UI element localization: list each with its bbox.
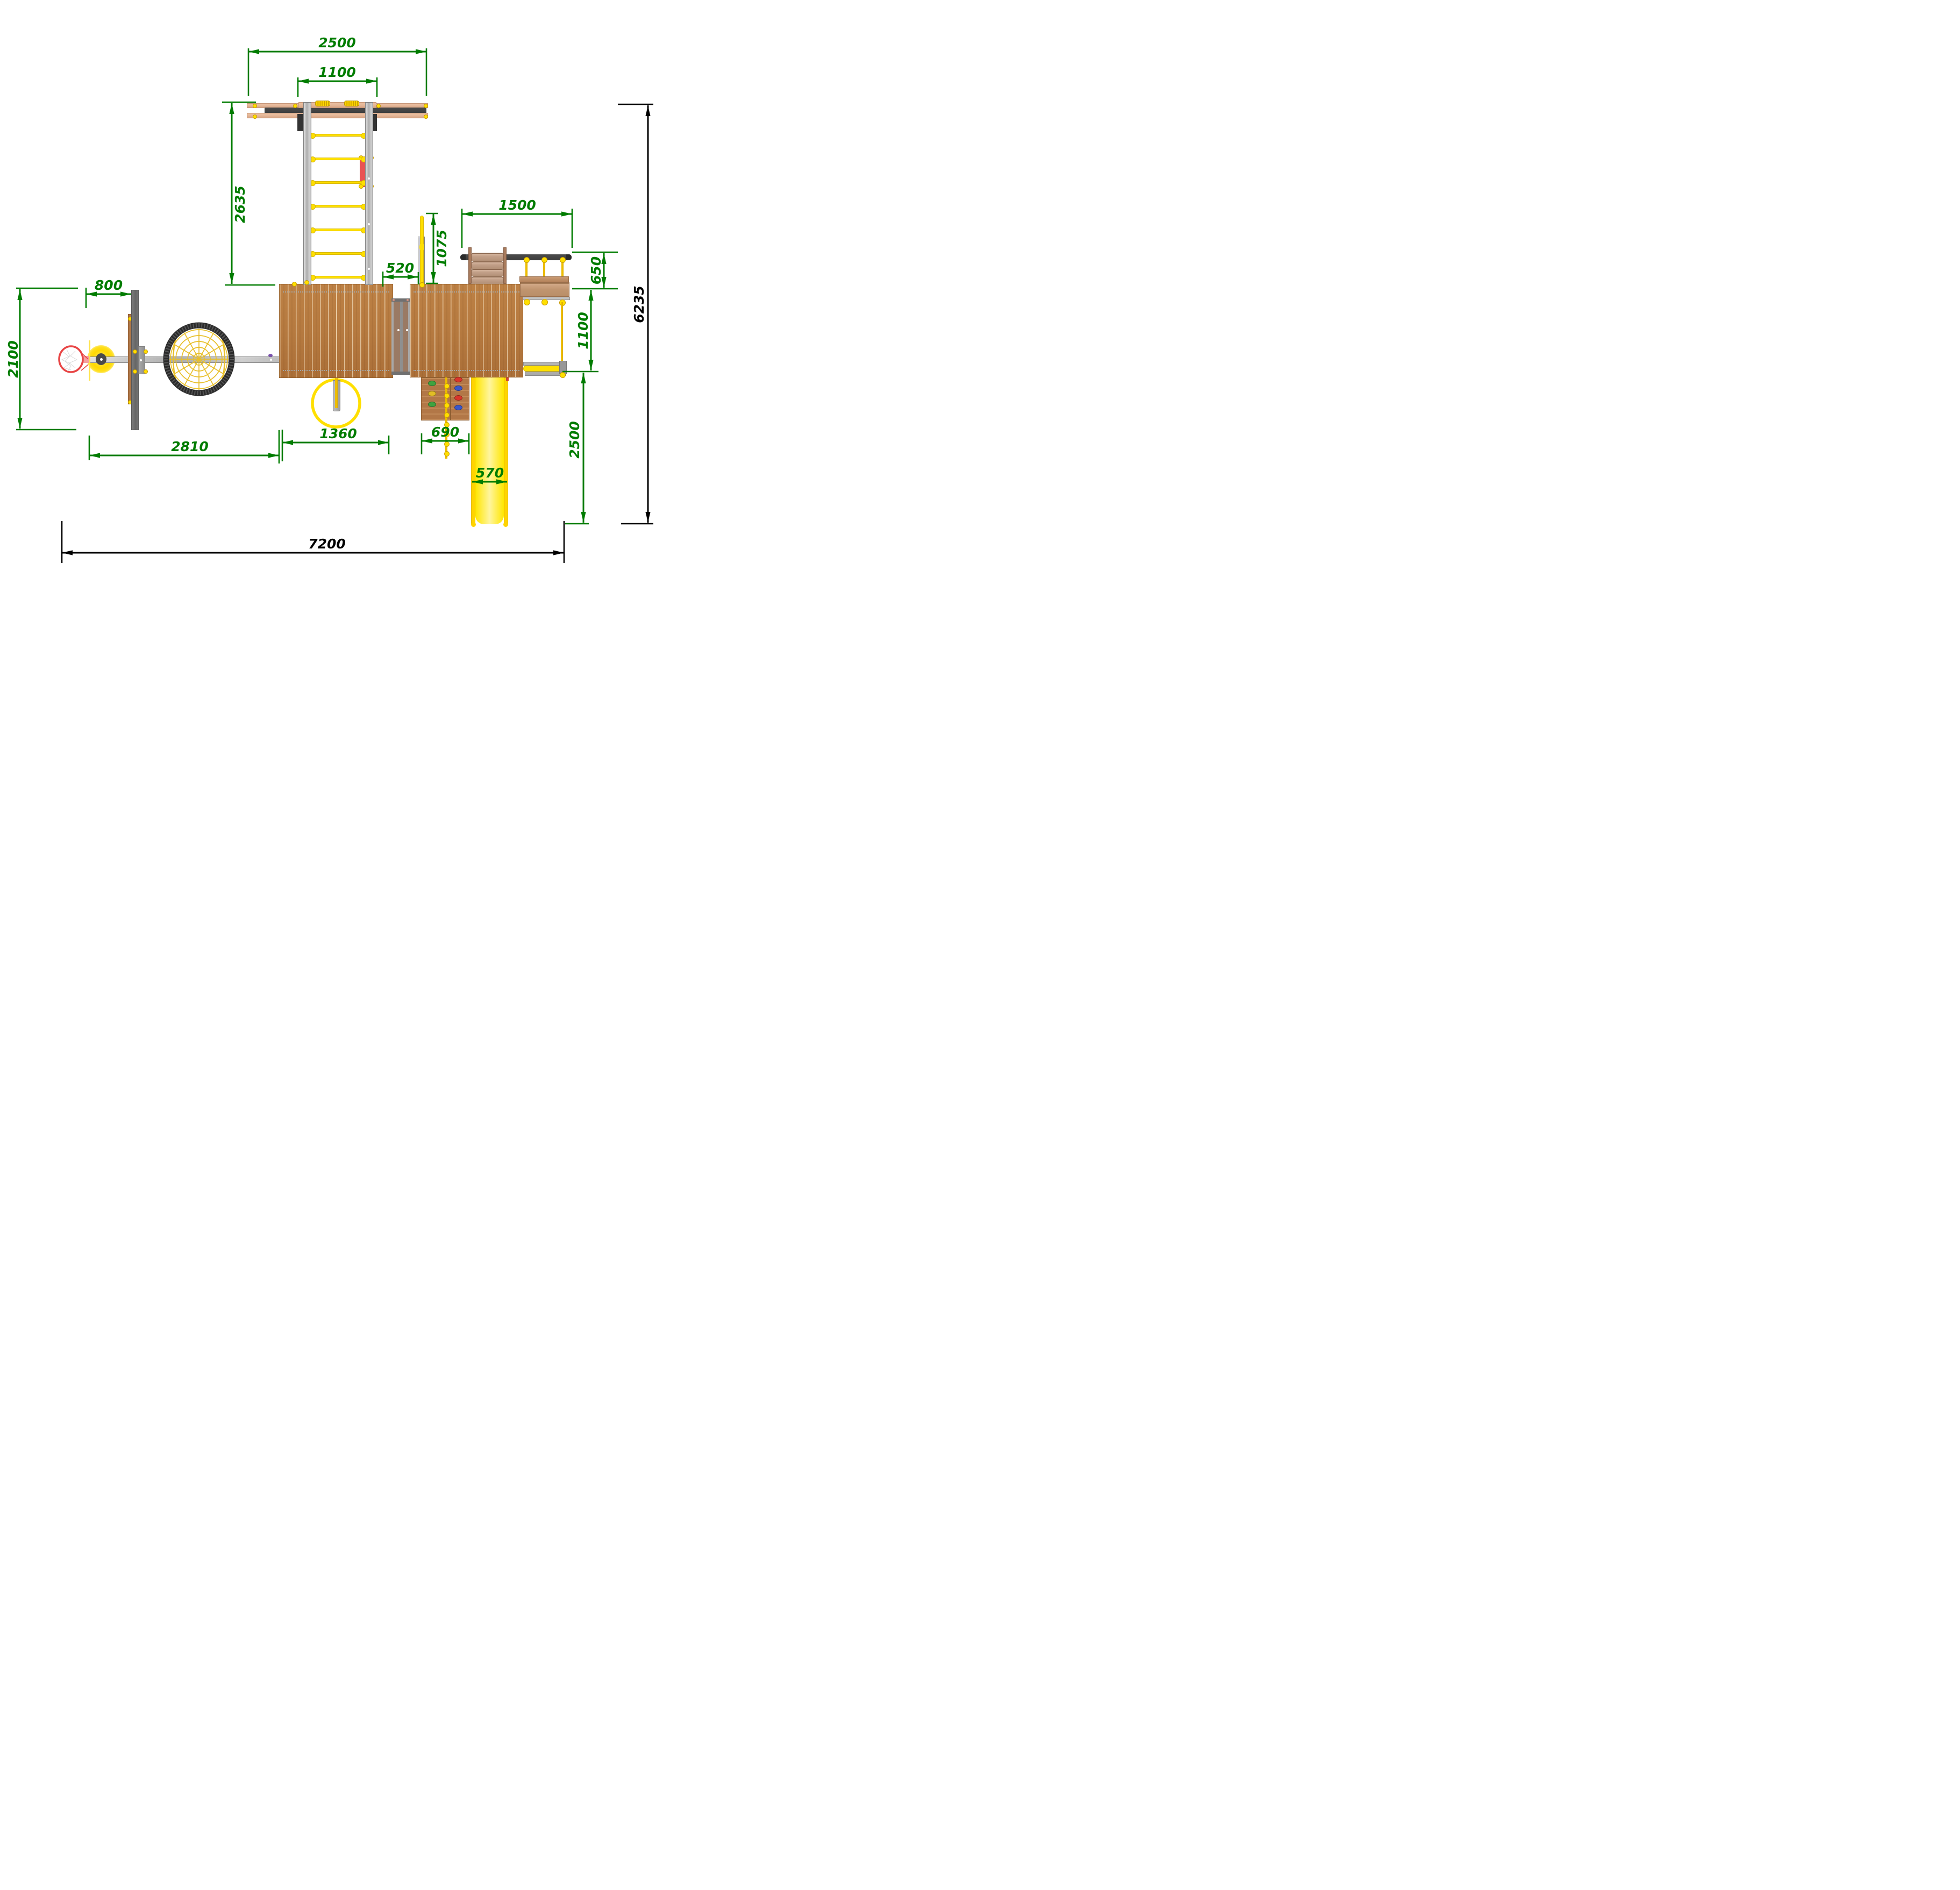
dim-label-1100-top: 1100 bbox=[318, 65, 356, 80]
dim-label-2500-right: 2500 bbox=[567, 421, 582, 459]
dim-label-2635: 2635 bbox=[232, 186, 248, 223]
dim-total-width: 7200 bbox=[62, 521, 564, 563]
dim-slide-width: 570 bbox=[472, 465, 507, 482]
dim-label-7200: 7200 bbox=[308, 536, 346, 552]
dim-label-650: 650 bbox=[588, 256, 604, 284]
dim-pole-gap: 520 bbox=[383, 260, 418, 287]
drawing-canvas: 2500 1100 2635 800 2100 bbox=[0, 0, 653, 630]
dim-label-1360: 1360 bbox=[319, 426, 357, 441]
dim-label-6235: 6235 bbox=[631, 286, 647, 323]
dim-pole-length: 1075 bbox=[426, 213, 450, 283]
dim-label-800: 800 bbox=[95, 277, 123, 293]
dim-backboard-offset: 800 bbox=[86, 277, 131, 308]
dim-label-520: 520 bbox=[386, 260, 414, 276]
dim-label-1075: 1075 bbox=[434, 230, 450, 267]
dim-label-2810: 2810 bbox=[171, 439, 209, 454]
dim-swing-hanger-spacing: 1100 bbox=[298, 65, 377, 97]
dim-label-690: 690 bbox=[431, 424, 459, 440]
dim-swing-clearance: 1100 bbox=[562, 290, 598, 372]
dim-label-1500: 1500 bbox=[498, 197, 536, 213]
dim-ring-swing-span: 1360 bbox=[282, 426, 389, 461]
dim-total-depth: 6235 bbox=[618, 104, 653, 524]
dim-label-1100-right: 1100 bbox=[575, 312, 591, 350]
dim-left-module-depth: 2100 bbox=[5, 288, 78, 430]
dim-climb-wall-width: 690 bbox=[422, 424, 469, 454]
dim-ladder-length: 2635 bbox=[222, 102, 275, 285]
dim-label-2500-top: 2500 bbox=[318, 35, 356, 51]
dimension-layer: 2500 1100 2635 800 2100 bbox=[0, 0, 653, 630]
dim-label-570: 570 bbox=[476, 465, 504, 481]
dim-swing-seat-offset: 650 bbox=[572, 252, 618, 289]
dim-slide-clearance: 2500 bbox=[565, 373, 589, 524]
dim-swing-beam-length: 1500 bbox=[462, 197, 572, 248]
dim-label-2100: 2100 bbox=[5, 340, 21, 378]
dim-left-module-span: 2810 bbox=[89, 430, 279, 463]
